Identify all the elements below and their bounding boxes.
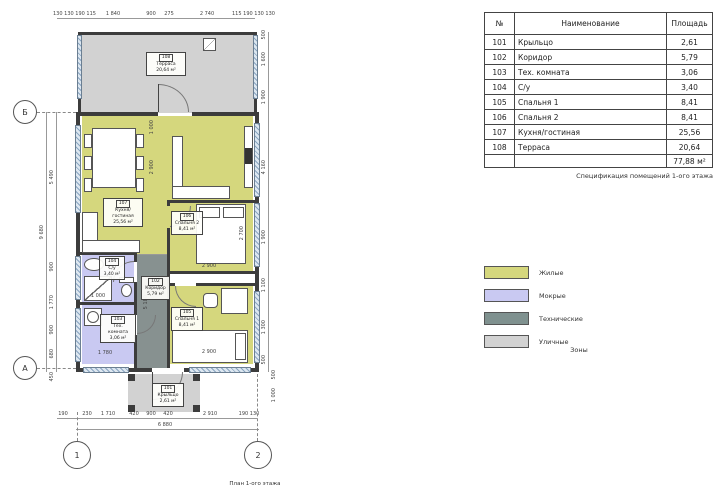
room-number: 106 (180, 213, 195, 221)
plan-caption: План 1-ого этажа (195, 481, 315, 487)
chair (136, 156, 144, 170)
tv (245, 148, 252, 164)
dim-left-3: 900 (50, 325, 55, 335)
axis-bubble-a: А (13, 356, 37, 380)
dim-right-extra-1: 1 000 (272, 388, 277, 402)
legend-swatch-technical (484, 312, 529, 325)
cell-name: Коридор (515, 50, 667, 65)
room-name: Кухня/гостиная (106, 208, 140, 220)
room-area: 20,64 м² (156, 68, 176, 74)
axis-label-a: А (22, 364, 27, 373)
cell-area: 3,06 (667, 65, 713, 80)
axis-bubble-1: 1 (63, 441, 91, 469)
cell-num: 103 (485, 65, 515, 80)
washer-drum (87, 311, 99, 323)
room-label-bedroom1: 105 Спальня 1 8,41 м² (171, 307, 203, 331)
dim-top-5: 115 190 130 130 (232, 12, 272, 17)
dim-living-w: 1 000 (150, 120, 155, 134)
desk-bedroom1 (221, 288, 248, 314)
dim-bottom-6: 2 910 (198, 412, 222, 417)
dim-bed2-w: 2 900 (198, 264, 220, 269)
axis-label-2: 2 (255, 451, 260, 460)
axis-line-b (37, 112, 76, 113)
dim-line-left-inner (56, 112, 57, 372)
cell-name: Крыльцо (515, 35, 667, 50)
table-row: 103Тех. комната3,06 (485, 65, 713, 80)
chair (84, 178, 92, 192)
window-bedroom1-east (255, 292, 259, 362)
dim-right-extra-0: 500 (272, 370, 277, 380)
room-number: 101 (161, 385, 176, 393)
cell-num: 104 (485, 80, 515, 95)
total-area: 77,88 м² (667, 155, 713, 168)
legend-swatch-living (484, 266, 529, 279)
dim-left-2: 1 770 (50, 295, 55, 309)
cell-num: 108 (485, 140, 515, 155)
pillow (235, 333, 246, 360)
spec-table: № Наименование Площадь 101Крыльцо2,61 10… (484, 12, 713, 168)
dim-left-1: 900 (50, 262, 55, 272)
legend-title: Зоны (484, 346, 674, 354)
chair (136, 178, 144, 192)
dim-bottom-7: 190 130 (236, 412, 262, 417)
spec-table-head: № Наименование Площадь (485, 13, 713, 35)
table-row: 101Крыльцо2,61 (485, 35, 713, 50)
spec-table-body: 101Крыльцо2,61 102Коридор5,79 103Тех. ко… (485, 35, 713, 155)
window-wc-west (76, 257, 80, 299)
spec-table-foot: 77,88 м² (485, 155, 713, 168)
dim-bottom-total: 6 880 (150, 423, 180, 428)
dim-top-0: 130 130 190 115 (53, 12, 91, 17)
legend-label: Мокрые (539, 292, 566, 300)
dim-bed1-w: 2 900 (198, 350, 220, 355)
dim-right-0: 500 (262, 30, 267, 40)
dim-top-3: 275 (160, 12, 178, 17)
cell-name: Спальня 1 (515, 95, 667, 110)
terrace-pier-right (254, 36, 257, 98)
cell-name: Кухня/гостиная (515, 125, 667, 140)
cell-num: 107 (485, 125, 515, 140)
room-area: 5,79 м² (147, 292, 164, 298)
room-area: 2,61 м² (160, 399, 177, 405)
cell-name: С/у (515, 80, 667, 95)
axis-label-1: 1 (74, 451, 79, 460)
dim-left-4: 680 (50, 349, 55, 359)
dim-bottom-0: 190 (56, 412, 70, 417)
dim-line-right (268, 32, 269, 372)
dim-bottom-3: 420 (126, 412, 142, 417)
table-row: 107Кухня/гостиная25,56 (485, 125, 713, 140)
cell-area: 8,41 (667, 95, 713, 110)
dim-top-1: 1 840 (100, 12, 126, 17)
porch-post-se (193, 405, 200, 412)
table-row: 105Спальня 18,41 (485, 95, 713, 110)
spec-table-caption: Спецификация помещений 1-ого этажа (484, 172, 713, 180)
cell-num: 101 (485, 35, 515, 50)
axis-label-b: Б (22, 108, 28, 117)
cell-name: Терраса (515, 140, 667, 155)
dim-left-below: 450 (50, 372, 55, 382)
dim-bottom-5: 420 (160, 412, 176, 417)
drawing-sheet: 108 Терраса 20,64 м² 107 Кухня/гостиная … (0, 0, 718, 502)
col-header-num: № (485, 13, 515, 35)
legend-item-technical: Технические (484, 312, 583, 325)
porch-post-nw (128, 374, 135, 381)
dim-bottom-2: 1 710 (97, 412, 119, 417)
dim-right-1: 1 600 (262, 52, 267, 66)
legend-item-living: Жилые (484, 266, 564, 279)
house-wall-top-right-seg (192, 112, 259, 116)
dim-living-h: 2 900 (150, 160, 155, 174)
dim-right-3: 4 160 (262, 160, 267, 174)
legend-swatch-wet (484, 289, 529, 302)
dim-bed2-d: 2 700 (240, 226, 245, 240)
zone-corridor (137, 255, 167, 368)
corridor-threshold (137, 254, 167, 255)
axis-bubble-b: Б (13, 100, 37, 124)
dim-bottom-4: 900 (143, 412, 159, 417)
cell-num: 105 (485, 95, 515, 110)
table-row: 102Коридор5,79 (485, 50, 713, 65)
dim-right-6: 1 300 (262, 320, 267, 334)
dim-bottom-1: 230 (80, 412, 94, 417)
cell-area: 25,56 (667, 125, 713, 140)
dim-shower: 1 000 (88, 294, 108, 299)
dim-top-4: 2 740 (194, 12, 220, 17)
room-label-tech: 103 Тех. комната 3,06 м² (100, 314, 136, 343)
total-empty-name (515, 155, 667, 168)
cell-name: Спальня 2 (515, 110, 667, 125)
dim-left-total: 9 680 (40, 225, 45, 239)
terrace-wall-top (78, 32, 257, 35)
desk-chair (203, 293, 218, 308)
toilet-bowl (121, 284, 132, 297)
sofa-seat (172, 186, 230, 199)
dining-table (92, 128, 136, 188)
partition-bedroom1-top-b (196, 283, 257, 286)
table-row: 108Терраса20,64 (485, 140, 713, 155)
room-label-corridor: 102 Коридор 5,79 м² (141, 276, 170, 300)
spec-header-row: № Наименование Площадь (485, 13, 713, 35)
total-empty-num (485, 155, 515, 168)
room-area: 8,41 м² (179, 227, 196, 233)
axis-bubble-2: 2 (244, 441, 272, 469)
room-number: 105 (180, 309, 195, 317)
col-header-area: Площадь (667, 13, 713, 35)
room-label-bedroom2: 106 Спальня 2 8,41 м² (171, 211, 203, 235)
room-label-terrace: 108 Терраса 20,64 м² (146, 52, 186, 76)
room-label-wc: 104 С/у 3,40 м² (99, 256, 125, 280)
room-area: 25,56 м² (113, 220, 133, 226)
room-area: 3,40 м² (104, 272, 121, 278)
room-number: 108 (159, 54, 174, 62)
legend-label: Уличные (539, 338, 569, 346)
dim-right-4: 1 900 (262, 230, 267, 244)
terrace-pier-left (78, 36, 81, 98)
chair (84, 134, 92, 148)
room-number: 102 (148, 278, 163, 286)
room-number: 107 (116, 200, 131, 208)
window-living-west (76, 126, 80, 212)
cell-area: 8,41 (667, 110, 713, 125)
floor-plan: 108 Терраса 20,64 м² 107 Кухня/гостиная … (0, 0, 330, 502)
axis-line-2 (257, 374, 258, 441)
axis-line-a (37, 368, 76, 369)
window-bedroom1-south (190, 368, 250, 372)
room-number: 103 (111, 316, 126, 324)
total-row: 77,88 м² (485, 155, 713, 168)
dim-right-2: 1 900 (262, 90, 267, 104)
chair (136, 134, 144, 148)
pillow (223, 207, 244, 218)
terrace-door-leaf (158, 84, 159, 112)
table-row: 104С/у3,40 (485, 80, 713, 95)
partition-corridor-left-b (134, 282, 137, 315)
porch-post-ne (193, 374, 200, 381)
cell-area: 20,64 (667, 140, 713, 155)
cell-area: 3,40 (667, 80, 713, 95)
dim-line-left-outer (46, 112, 47, 372)
terrace-skylight (203, 38, 216, 51)
cell-area: 5,79 (667, 50, 713, 65)
dim-tech-w: 1 780 (94, 351, 116, 356)
dim-right-7: 500 (262, 355, 267, 365)
room-name: Тех. комната (103, 324, 133, 336)
legend-item-wet: Мокрые (484, 289, 566, 302)
dim-left-0: 5 490 (50, 170, 55, 184)
window-bedroom2-east (255, 204, 259, 266)
room-number: 104 (105, 258, 120, 266)
partition-bedroom2-bottom (167, 271, 255, 274)
dim-line-bottom-chain (57, 418, 257, 419)
legend-label: Технические (539, 315, 583, 323)
dim-top-2: 900 (141, 12, 161, 17)
legend-label: Жилые (539, 269, 564, 277)
dim-right-5: 1 100 (262, 278, 267, 292)
cell-num: 102 (485, 50, 515, 65)
kitchen-counter-horizontal (82, 240, 140, 253)
col-header-name: Наименование (515, 13, 667, 35)
room-label-kitchen: 107 Кухня/гостиная 25,56 м² (103, 198, 143, 227)
partition-wc-tech (80, 302, 136, 305)
cell-area: 2,61 (667, 35, 713, 50)
window-tech-south (84, 368, 128, 372)
cell-name: Тех. комната (515, 65, 667, 80)
dim-line-bottom-total (76, 429, 259, 430)
house-wall-top-left-seg (76, 112, 158, 116)
window-tech-west (76, 309, 80, 361)
table-row: 106Спальня 28,41 (485, 110, 713, 125)
chair (84, 156, 92, 170)
partition-bedroom2-top (167, 200, 257, 203)
window-living-east (255, 124, 259, 196)
room-area: 3,06 м² (110, 336, 127, 342)
room-area: 8,41 м² (179, 323, 196, 329)
axis-line-1 (77, 412, 78, 441)
cell-num: 106 (485, 110, 515, 125)
dim-line-top (57, 18, 255, 19)
room-label-porch: 101 Крыльцо 2,61 м² (152, 383, 184, 407)
